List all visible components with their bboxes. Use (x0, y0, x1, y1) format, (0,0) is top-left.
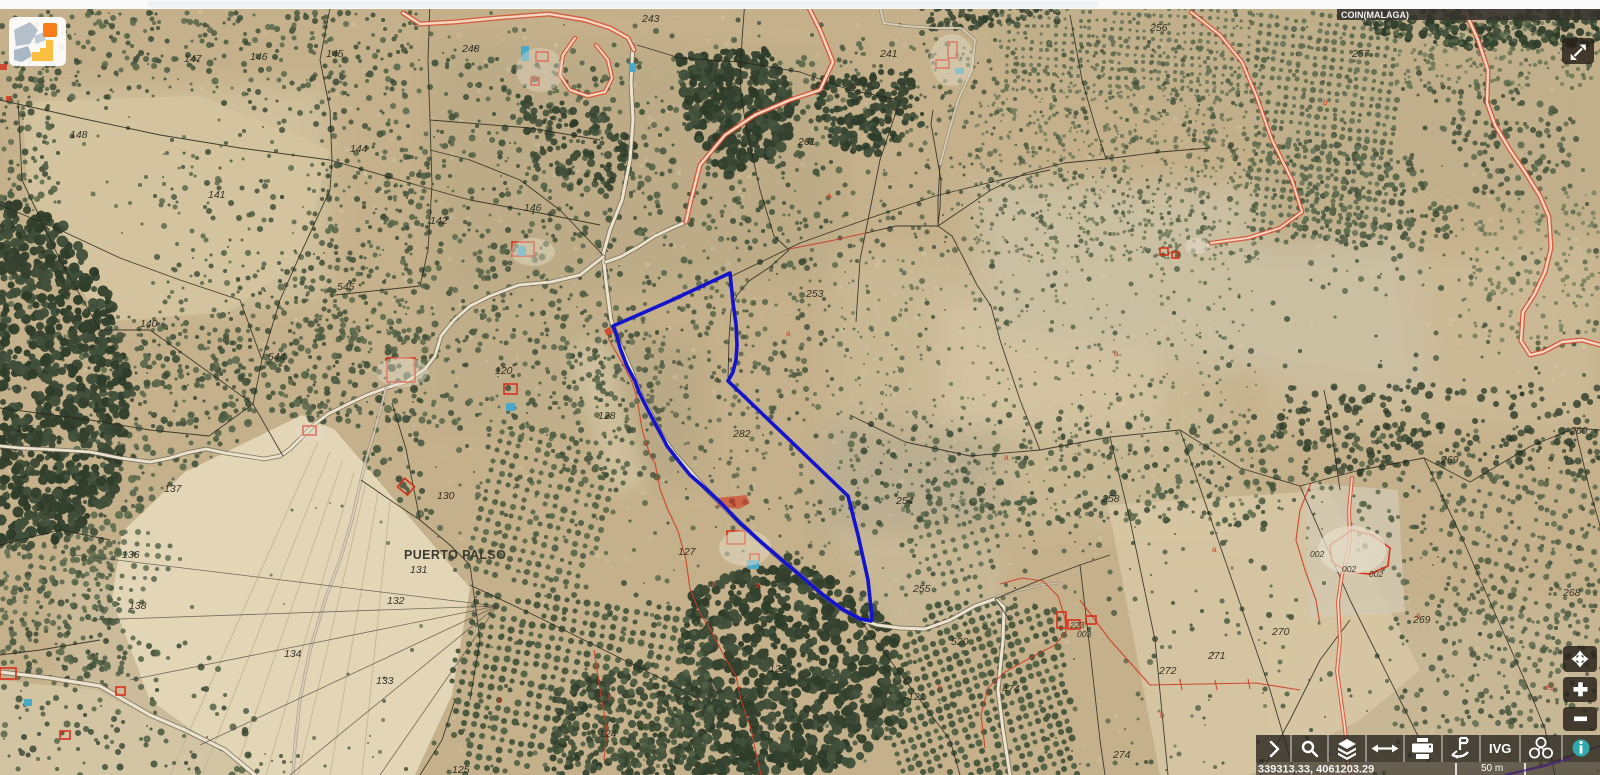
svg-text:141: 141 (208, 189, 226, 201)
svg-text:261: 261 (797, 136, 816, 148)
svg-text:002: 002 (1369, 569, 1383, 579)
svg-text:50 m: 50 m (1481, 763, 1503, 774)
svg-text:258: 258 (1101, 493, 1120, 505)
svg-text:144: 144 (350, 143, 368, 155)
svg-text:260: 260 (1569, 425, 1588, 437)
svg-text:269: 269 (1412, 614, 1431, 626)
svg-text:a: a (1416, 611, 1421, 620)
svg-text:138: 138 (129, 600, 147, 612)
svg-text:a: a (712, 579, 717, 588)
svg-text:PUERTO PALSO: PUERTO PALSO (404, 548, 506, 562)
svg-text:b: b (938, 683, 943, 692)
svg-text:e1: e1 (1545, 683, 1554, 692)
svg-text:140: 140 (140, 318, 158, 330)
svg-text:520: 520 (951, 636, 969, 648)
svg-text:125: 125 (452, 764, 470, 775)
svg-text:124: 124 (599, 728, 617, 740)
svg-text:148: 148 (70, 129, 88, 141)
svg-text:132: 132 (387, 595, 405, 607)
svg-text:003: 003 (1077, 629, 1091, 639)
svg-text:243: 243 (641, 13, 660, 25)
svg-text:545: 545 (337, 281, 355, 293)
svg-text:120: 120 (495, 365, 513, 377)
svg-text:257: 257 (1351, 48, 1371, 60)
svg-text:a: a (786, 329, 791, 338)
svg-text:134: 134 (284, 648, 302, 660)
svg-text:002: 002 (1310, 549, 1324, 559)
svg-text:146: 146 (250, 51, 268, 63)
svg-text:474: 474 (1002, 683, 1020, 695)
svg-text:135: 135 (16, 423, 34, 435)
svg-text:282: 282 (732, 428, 751, 440)
svg-text:b: b (1323, 98, 1328, 107)
svg-text:121: 121 (908, 691, 926, 703)
svg-text:145: 145 (326, 48, 344, 60)
svg-text:b: b (608, 693, 613, 702)
svg-text:128: 128 (598, 410, 616, 422)
svg-text:274: 274 (1112, 749, 1131, 761)
svg-text:127: 127 (678, 546, 697, 558)
svg-text:255: 255 (912, 583, 931, 595)
svg-text:253: 253 (805, 288, 824, 300)
svg-text:241: 241 (879, 48, 898, 60)
svg-text:271: 271 (1207, 650, 1226, 662)
svg-text:b: b (1160, 711, 1165, 720)
svg-text:256: 256 (1149, 22, 1168, 34)
svg-text:131: 131 (410, 564, 428, 576)
svg-text:269: 269 (1440, 454, 1459, 466)
svg-text:248: 248 (461, 43, 480, 55)
svg-text:a: a (1212, 545, 1217, 554)
svg-text:272: 272 (1158, 665, 1177, 677)
svg-text:a: a (827, 191, 832, 200)
svg-text:137: 137 (164, 483, 183, 495)
svg-text:133: 133 (376, 675, 394, 687)
svg-text:339313.33, 4061203.29: 339313.33, 4061203.29 (1258, 764, 1374, 775)
svg-text:a: a (1114, 349, 1119, 358)
svg-text:002: 002 (1342, 564, 1356, 574)
svg-text:270: 270 (1271, 626, 1290, 638)
svg-text:122: 122 (769, 663, 787, 675)
svg-text:a: a (1004, 453, 1009, 462)
svg-text:COIN(MALAGA): COIN(MALAGA) (1341, 10, 1409, 20)
svg-text:544: 544 (268, 351, 286, 363)
svg-text:268: 268 (1562, 587, 1581, 599)
svg-text:130: 130 (437, 490, 455, 502)
svg-text:IVG: IVG (1489, 741, 1511, 756)
svg-text:136: 136 (122, 549, 140, 561)
svg-text:254: 254 (895, 495, 914, 507)
svg-text:b: b (755, 581, 760, 590)
svg-text:b: b (497, 696, 502, 705)
svg-text:146: 146 (524, 202, 542, 214)
svg-text:147: 147 (184, 53, 203, 65)
svg-text:142: 142 (430, 215, 448, 227)
